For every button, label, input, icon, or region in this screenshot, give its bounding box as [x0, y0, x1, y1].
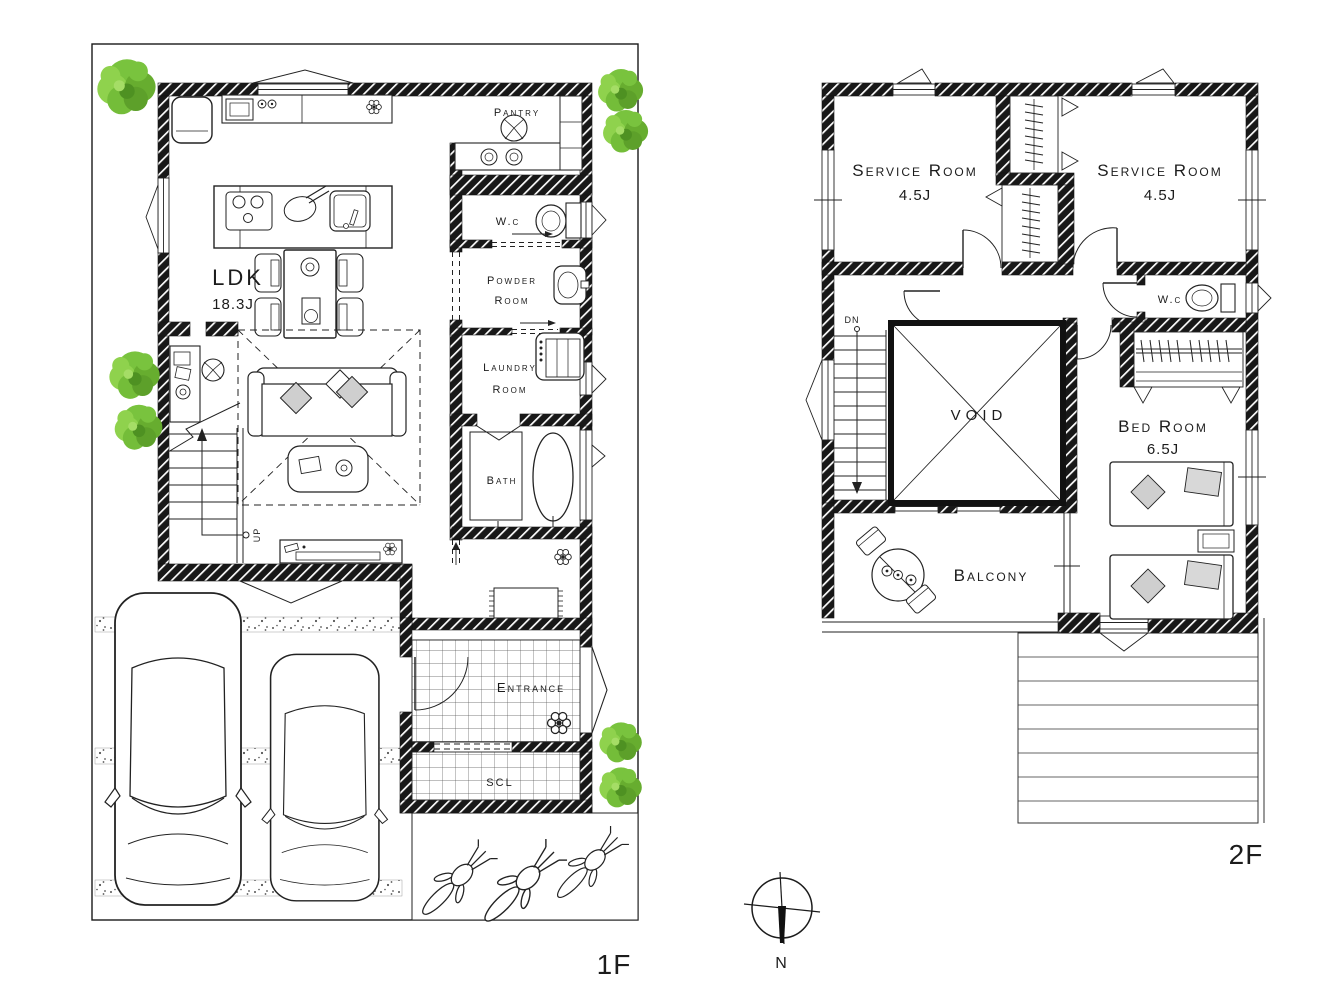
fridge: [172, 97, 212, 143]
sofa-seat: [262, 384, 392, 436]
stairs-down-label: DN: [845, 315, 860, 325]
floor-1-plan: UP Pantry W.c Powder Room: [92, 44, 648, 980]
tv: [296, 552, 380, 560]
bath-label: Bath: [487, 475, 518, 487]
ldk-size: 18.3J: [212, 296, 254, 313]
counter-plant: [367, 100, 382, 113]
scl-tiles: [412, 752, 580, 800]
roof-1f-over: [1018, 618, 1264, 823]
pillow: [1184, 468, 1221, 496]
shoe-closet: [412, 744, 580, 800]
powder-label-2: Room: [494, 295, 529, 307]
entrance-step: [412, 630, 580, 640]
stove: [226, 192, 272, 230]
floor1-label: 1F: [597, 949, 632, 980]
car-small: [262, 654, 388, 900]
coffee-table: [288, 446, 368, 492]
wc1-label: W.c: [496, 216, 521, 228]
service-room-1-size: 4.5J: [899, 187, 931, 204]
floor-2-plan: DN VOID W.c Be: [806, 69, 1271, 870]
powder-label-1: Powder: [487, 275, 537, 287]
pillow: [1184, 561, 1221, 589]
ldk-label: LDK: [212, 265, 264, 290]
balcony-label: Balcony: [954, 566, 1029, 585]
tv-plant: [384, 543, 397, 555]
laundry-label-2: Room: [492, 384, 527, 396]
service-room-1-label: Service Room: [852, 161, 977, 180]
laundry-label-1: Laundry: [483, 362, 537, 374]
entrance-label: Entrance: [497, 680, 565, 695]
hall-plant: [555, 549, 572, 564]
bathtub: [533, 433, 573, 521]
stairs-up-label: UP: [252, 528, 262, 543]
floorplan-canvas: UP Pantry W.c Powder Room: [0, 0, 1333, 1000]
car-large: [105, 593, 251, 905]
scl-label: SCL: [486, 777, 513, 789]
bedroom-size: 6.5J: [1147, 441, 1179, 458]
bedroom-label: Bed Room: [1118, 417, 1208, 436]
void-label: VOID: [951, 407, 1008, 424]
wc-2f: [1186, 284, 1235, 312]
pantry-cabinet: [560, 96, 582, 170]
service-room-2-size: 4.5J: [1144, 187, 1176, 204]
hall-rug: [494, 588, 558, 618]
wc2-label: W.c: [1158, 294, 1183, 306]
entrance-plant: [548, 713, 571, 734]
compass-north-label: N: [775, 955, 787, 972]
compass-icon: [744, 872, 820, 944]
service-room-2-label: Service Room: [1097, 161, 1222, 180]
floorplan-drawing: UP Pantry W.c Powder Room: [0, 0, 1333, 1000]
floor2-label: 2F: [1229, 839, 1264, 870]
pantry-label: Pantry: [494, 107, 540, 119]
